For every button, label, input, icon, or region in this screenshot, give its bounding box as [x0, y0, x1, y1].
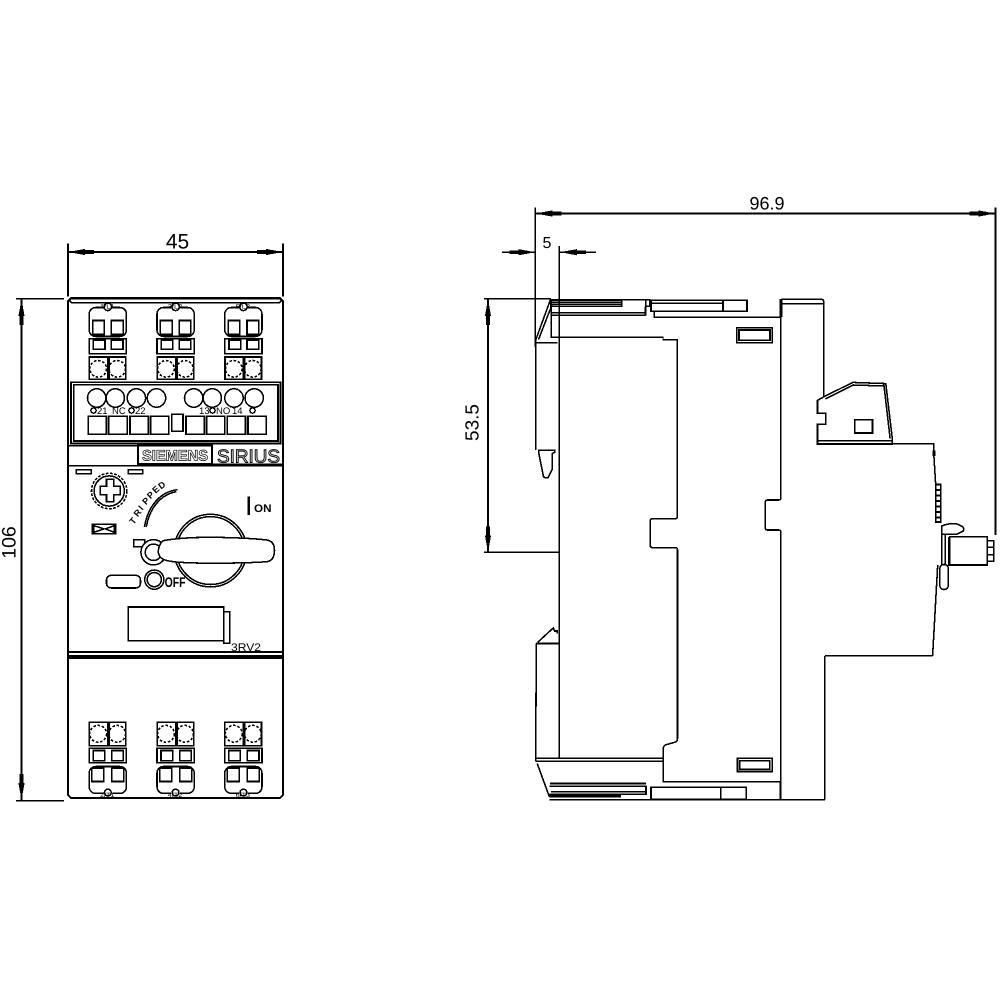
svg-text:45: 45 — [166, 231, 189, 254]
svg-text:21: 21 — [97, 406, 108, 417]
svg-text:2/T1: 2/T1 — [100, 792, 115, 799]
svg-text:ON: ON — [254, 503, 272, 515]
svg-text:NO: NO — [216, 406, 230, 417]
svg-text:1/L1: 1/L1 — [100, 304, 115, 311]
svg-text:SIEMENS: SIEMENS — [142, 448, 208, 465]
svg-text:6/T3: 6/T3 — [236, 792, 251, 799]
svg-text:106: 106 — [0, 526, 21, 559]
svg-text:53.5: 53.5 — [463, 404, 484, 441]
svg-text:13: 13 — [199, 406, 210, 417]
svg-text:SIRIUS: SIRIUS — [217, 446, 280, 467]
svg-text:3/L2: 3/L2 — [168, 304, 183, 311]
svg-text:5: 5 — [543, 235, 552, 252]
svg-text:96.9: 96.9 — [749, 194, 784, 214]
svg-text:4/T2: 4/T2 — [168, 792, 183, 799]
svg-text:OFF: OFF — [165, 574, 186, 590]
svg-text:22: 22 — [135, 406, 146, 417]
svg-text:14: 14 — [232, 406, 243, 417]
svg-text:NC: NC — [112, 406, 126, 417]
svg-text:5/L3: 5/L3 — [236, 304, 251, 311]
